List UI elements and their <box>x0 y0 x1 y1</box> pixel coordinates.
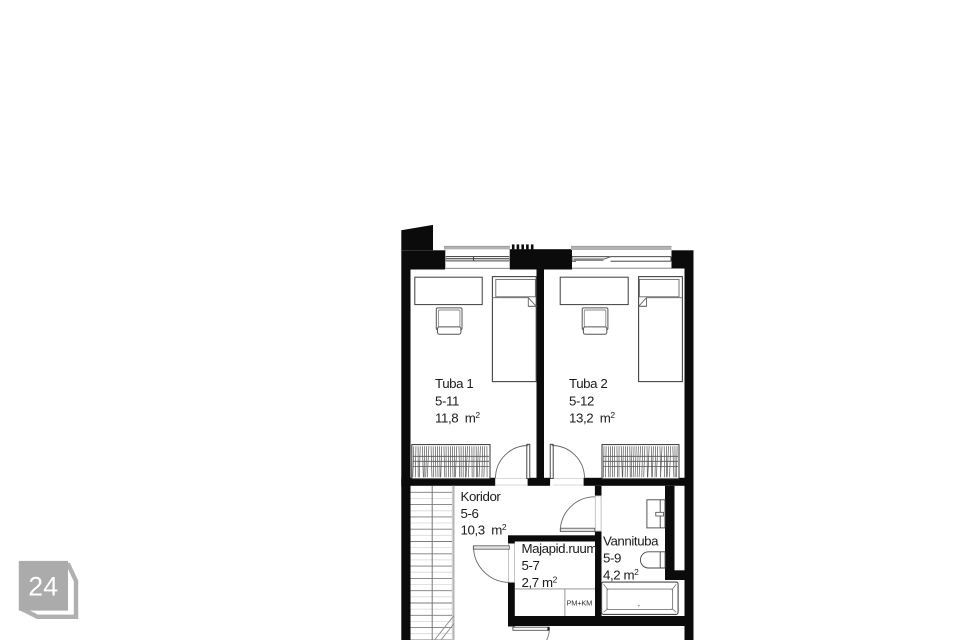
svg-text:PM+KM: PM+KM <box>567 599 593 608</box>
svg-text:5-9: 5-9 <box>603 551 621 566</box>
svg-text:24: 24 <box>28 572 58 602</box>
svg-text:Tuba 1: Tuba 1 <box>435 376 473 391</box>
svg-text:Vannituba: Vannituba <box>603 533 659 548</box>
svg-text:Koridor: Koridor <box>461 489 502 504</box>
svg-text:10,3 m2: 10,3 m2 <box>461 522 507 538</box>
svg-text:4,2 m2: 4,2 m2 <box>603 567 639 583</box>
svg-text:11,8 m2: 11,8 m2 <box>435 410 480 426</box>
svg-text:Majapid.ruum: Majapid.ruum <box>522 541 598 556</box>
svg-text:5-12: 5-12 <box>569 393 594 408</box>
svg-text:5-7: 5-7 <box>522 558 540 573</box>
svg-text:Tuba 2: Tuba 2 <box>569 376 607 391</box>
svg-text:5-11: 5-11 <box>435 393 459 408</box>
svg-text:2,7 m2: 2,7 m2 <box>522 574 558 590</box>
svg-text:13,2 m2: 13,2 m2 <box>569 410 615 426</box>
svg-text:5-6: 5-6 <box>461 506 479 521</box>
